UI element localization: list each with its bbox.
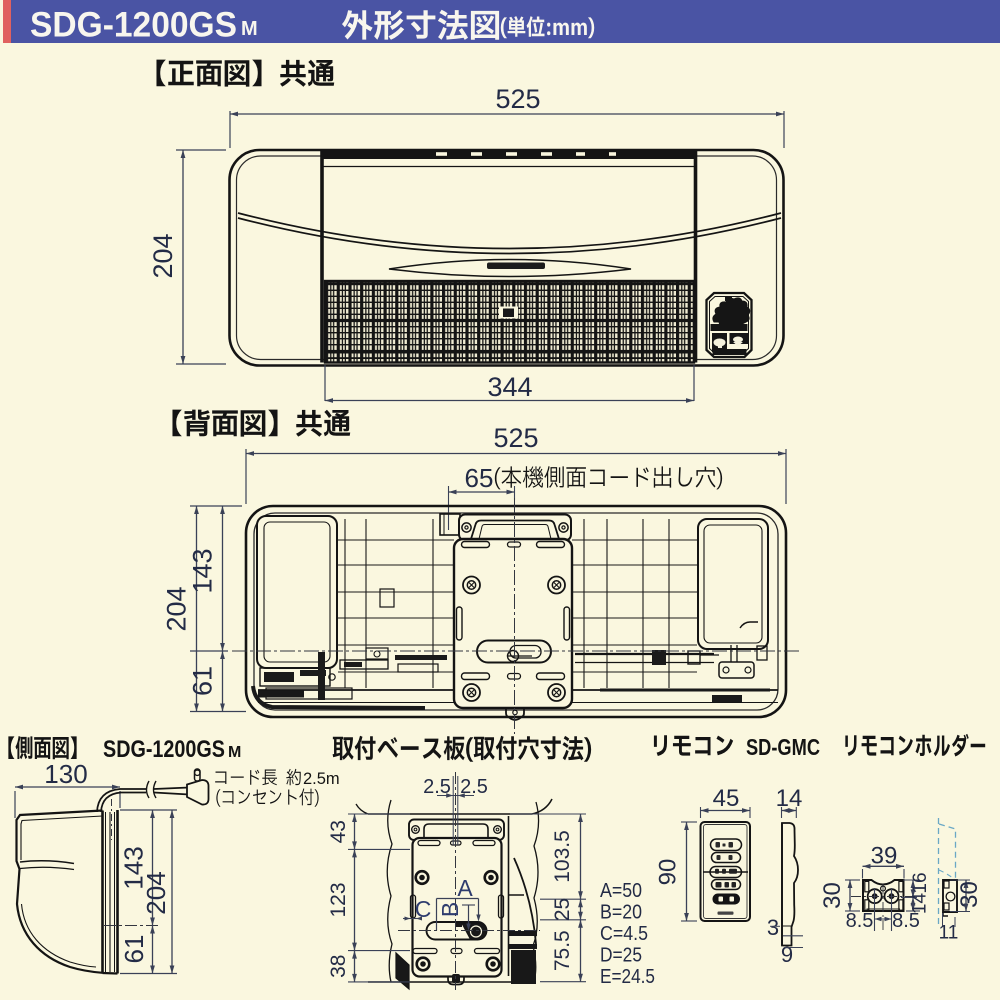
- svg-text:SD-GMC: SD-GMC: [746, 734, 820, 760]
- svg-text:E=24.5: E=24.5: [600, 966, 655, 988]
- svg-text:30: 30: [956, 881, 983, 908]
- svg-text:D=25: D=25: [600, 945, 642, 967]
- svg-text:14: 14: [776, 785, 803, 812]
- svg-text:B=20: B=20: [600, 902, 642, 924]
- svg-text:38: 38: [327, 955, 350, 978]
- svg-text:75.5: 75.5: [551, 930, 574, 971]
- svg-text:130: 130: [44, 759, 87, 789]
- svg-text:25: 25: [551, 898, 574, 921]
- svg-text:M: M: [241, 18, 258, 40]
- svg-text:61: 61: [188, 666, 218, 696]
- svg-text:90: 90: [655, 859, 682, 886]
- svg-text:11: 11: [939, 923, 959, 944]
- svg-text:M: M: [228, 744, 241, 761]
- svg-text:2.5m: 2.5m: [303, 770, 340, 788]
- svg-text:A=50: A=50: [600, 880, 642, 902]
- svg-text:525: 525: [495, 84, 540, 114]
- svg-text:39: 39: [871, 843, 898, 870]
- svg-text:B: B: [437, 902, 463, 917]
- svg-text:204: 204: [141, 871, 171, 914]
- svg-text:143: 143: [188, 548, 218, 593]
- svg-text:3: 3: [767, 915, 779, 940]
- svg-text:123: 123: [327, 882, 350, 917]
- svg-text:SDG-1200GS: SDG-1200GS: [103, 736, 225, 763]
- svg-text:C=4.5: C=4.5: [600, 923, 648, 945]
- svg-text:9: 9: [781, 942, 793, 967]
- svg-text:8.5: 8.5: [892, 910, 920, 932]
- svg-text:61: 61: [119, 935, 149, 964]
- svg-text:A: A: [457, 875, 473, 901]
- svg-text:65: 65: [465, 463, 494, 493]
- svg-text:344: 344: [487, 372, 532, 402]
- svg-text:45: 45: [713, 785, 740, 812]
- svg-text:SDG-1200GS: SDG-1200GS: [30, 6, 237, 45]
- svg-text:525: 525: [493, 423, 538, 453]
- svg-text:8.5: 8.5: [846, 910, 874, 932]
- svg-text:204: 204: [148, 233, 178, 278]
- svg-text:16: 16: [910, 872, 931, 893]
- svg-text:103.5: 103.5: [551, 830, 574, 883]
- svg-text:30: 30: [819, 882, 846, 909]
- svg-text:43: 43: [327, 820, 350, 843]
